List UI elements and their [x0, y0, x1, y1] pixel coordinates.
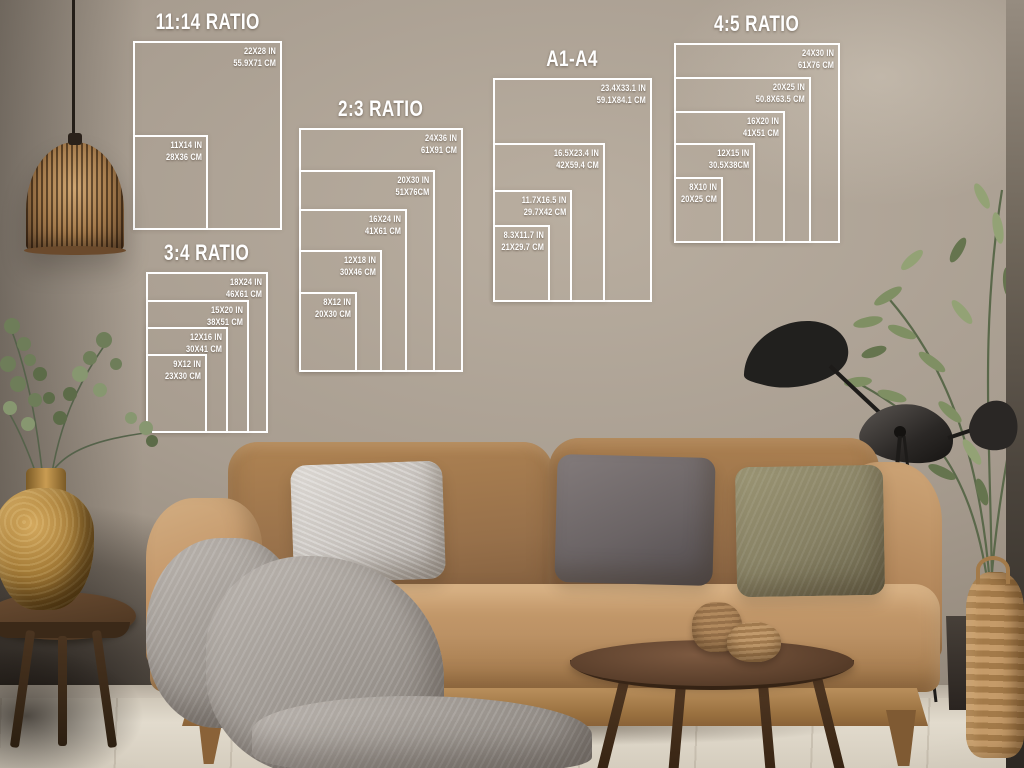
size-label: 12X16 IN30X41 CM [186, 332, 222, 356]
size-rect-8x10: 8X10 IN20X25 CM [674, 177, 723, 243]
throw-pillow-dark [554, 454, 715, 586]
size-rect-8x12: 8X12 IN20X30 CM [299, 292, 357, 372]
size-label: 16.5X23.4 IN42X59.4 CM [554, 148, 599, 172]
size-guide-a1-a4: A1-A4 23.4X33.1 IN59.1X84.1 CM 16.5X23.4… [493, 78, 652, 302]
side-table-leg [58, 636, 67, 746]
gold-vase [0, 488, 94, 610]
size-guide-title: A1-A4 [473, 46, 672, 72]
size-label: 15X20 IN38X51 CM [207, 305, 243, 329]
size-label: 16X24 IN41X61 CM [365, 214, 401, 238]
size-rect-11x14: 11X14 IN28X36 CM [133, 135, 208, 230]
size-guide-2-3: 2:3 RATIO 24X36 IN61X91 CM 20X30 IN51X76… [299, 128, 463, 372]
size-label: 16X20 IN41X51 CM [743, 116, 779, 140]
size-label: 24X36 IN61X91 CM [421, 133, 457, 157]
size-label: 11.7X16.5 IN29.7X42 CM [521, 195, 566, 219]
size-label: 12X15 IN30.5X38CM [709, 148, 749, 172]
size-guide-4-5: 4:5 RATIO 24X30 IN61X76 CM 20X25 IN50.8X… [674, 43, 840, 243]
size-label: 22X28 IN55.9X71 CM [233, 46, 276, 70]
size-rect-a4: 8.3X11.7 IN21X29.7 CM [493, 225, 550, 302]
size-label: 8.3X11.7 IN21X29.7 CM [501, 230, 544, 254]
size-label: 20X30 IN51X76CM [395, 175, 429, 199]
size-guide-title: 3:4 RATIO [126, 240, 288, 266]
size-guide-title: 2:3 RATIO [279, 96, 483, 122]
size-label: 12X18 IN30X46 CM [340, 255, 376, 279]
eucalyptus-branches [0, 268, 185, 503]
seagrass-basket [966, 572, 1024, 758]
pendant-cord [72, 0, 75, 146]
size-label: 23.4X33.1 IN59.1X84.1 CM [597, 83, 646, 107]
size-label: 24X30 IN61X76 CM [798, 48, 834, 72]
size-label: 20X25 IN50.8X63.5 CM [756, 82, 805, 106]
size-guide-11-14: 11:14 RATIO 22X28 IN55.9X71 CM 11X14 IN2… [133, 41, 282, 230]
rattan-pendant-lamp [26, 142, 124, 252]
size-guide-title: 11:14 RATIO [113, 9, 302, 35]
throw-pillow-olive [735, 465, 885, 598]
size-label: 8X10 IN20X25 CM [681, 182, 717, 206]
size-label: 8X12 IN20X30 CM [315, 297, 351, 321]
size-label: 18X24 IN46X61 CM [226, 277, 262, 301]
decor-bowl [727, 622, 781, 662]
size-guide-title: 4:5 RATIO [654, 11, 860, 37]
living-room-scene: 11:14 RATIO 22X28 IN55.9X71 CM 11X14 IN2… [0, 0, 1024, 768]
size-label: 11X14 IN28X36 CM [166, 140, 202, 164]
